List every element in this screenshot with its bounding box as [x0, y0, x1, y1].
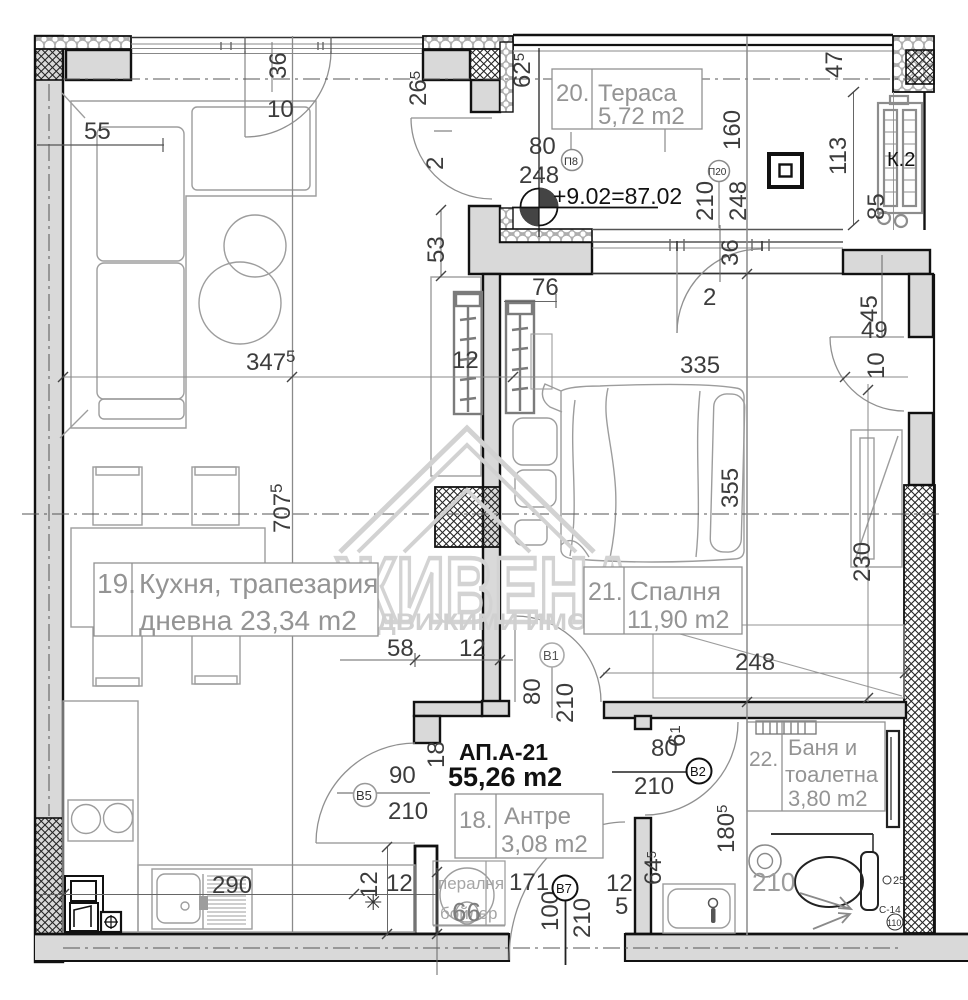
- svg-text:12: 12: [452, 347, 479, 374]
- svg-text:210: 210: [752, 867, 795, 897]
- svg-text:90: 90: [389, 762, 416, 789]
- svg-text:248: 248: [735, 649, 775, 676]
- svg-text:B5: B5: [356, 788, 372, 803]
- svg-text:Спалня: Спалня: [630, 576, 721, 606]
- svg-text:+9.02=87.02: +9.02=87.02: [553, 183, 682, 209]
- svg-text:113: 113: [825, 137, 852, 175]
- svg-text:355: 355: [717, 468, 744, 508]
- svg-text:210: 210: [692, 181, 719, 221]
- svg-text:210: 210: [552, 683, 579, 723]
- svg-text:11,90 m2: 11,90 m2: [627, 606, 729, 634]
- svg-text:✳: ✳: [364, 890, 382, 915]
- svg-text:B1: B1: [543, 648, 559, 663]
- svg-text:К.2: К.2: [887, 149, 915, 171]
- svg-text:21.: 21.: [588, 578, 623, 606]
- svg-text:дневна 23,34 m2: дневна 23,34 m2: [139, 605, 357, 636]
- svg-text:160: 160: [719, 110, 746, 150]
- svg-text:B2: B2: [690, 764, 706, 779]
- svg-text:B7: B7: [556, 881, 572, 896]
- svg-text:пералня: пералня: [438, 874, 504, 893]
- svg-text:55,26 m2: 55,26 m2: [448, 762, 562, 792]
- svg-text:290: 290: [212, 872, 252, 899]
- svg-text:55: 55: [84, 118, 111, 145]
- svg-text:210: 210: [569, 898, 596, 938]
- svg-text:Антре: Антре: [504, 803, 571, 830]
- svg-text:5,72 m2: 5,72 m2: [598, 103, 685, 130]
- svg-text:53: 53: [423, 236, 450, 263]
- svg-text:18: 18: [423, 741, 450, 768]
- svg-text:66: 66: [452, 897, 481, 927]
- svg-text:10: 10: [267, 96, 294, 123]
- svg-text:Кухня, трапезария: Кухня, трапезария: [139, 568, 378, 599]
- svg-text:49: 49: [861, 317, 888, 344]
- svg-text:П8: П8: [564, 156, 578, 168]
- svg-text:20.: 20.: [556, 80, 589, 107]
- svg-text:22.: 22.: [749, 748, 778, 771]
- svg-text:85: 85: [863, 193, 890, 220]
- svg-text:тоалетна: тоалетна: [785, 762, 879, 787]
- svg-text:10: 10: [863, 352, 890, 379]
- svg-text:210: 210: [634, 773, 674, 800]
- svg-text:80: 80: [519, 678, 546, 705]
- svg-text:76: 76: [532, 274, 559, 301]
- svg-text:12: 12: [386, 870, 413, 897]
- svg-text:230: 230: [849, 542, 876, 582]
- svg-text:5: 5: [615, 893, 628, 920]
- svg-text:210: 210: [388, 798, 428, 825]
- svg-text:НЕДВИЖИМИ ИМОТИ: НЕДВИЖИМИ ИМОТИ: [340, 609, 623, 636]
- svg-text:335: 335: [680, 352, 720, 379]
- svg-text:2: 2: [703, 284, 716, 311]
- svg-text:Баня и: Баня и: [788, 735, 857, 760]
- svg-text:36: 36: [717, 239, 744, 266]
- svg-text:18.: 18.: [459, 807, 492, 834]
- svg-text:3,80 m2: 3,80 m2: [788, 786, 868, 811]
- svg-text:19.: 19.: [97, 568, 136, 599]
- svg-text:П20: П20: [708, 167, 727, 178]
- svg-text:36: 36: [265, 52, 292, 79]
- svg-text:47: 47: [821, 51, 848, 78]
- svg-text:3,08 m2: 3,08 m2: [501, 831, 588, 858]
- svg-text:248: 248: [725, 181, 752, 221]
- svg-text:80: 80: [529, 133, 556, 160]
- svg-text:12: 12: [459, 635, 486, 662]
- svg-text:110: 110: [887, 918, 901, 928]
- svg-text:25: 25: [893, 875, 905, 887]
- svg-text:2: 2: [422, 157, 449, 170]
- svg-text:58: 58: [387, 635, 414, 662]
